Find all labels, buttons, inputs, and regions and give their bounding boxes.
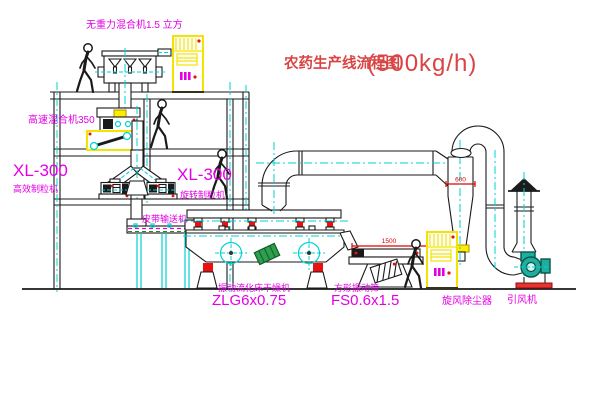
cyclone-diameter-dim: 600 — [455, 177, 466, 184]
exhaust-duct — [256, 142, 448, 214]
granulator-right — [145, 179, 177, 199]
cad-flow-diagram: 1500 548 600 — [0, 0, 600, 403]
control-cabinet-upper — [172, 36, 204, 92]
sieve-length-dim: 1500 — [382, 238, 397, 245]
drawing-title: 农药生产线流程图 (500kg/h) — [283, 50, 477, 77]
drawing-canvas: 1500 548 600 — [0, 0, 600, 403]
label-granulator-right-model: XL-300 — [177, 165, 232, 184]
label-dryer-model: ZLG6x0.75 — [212, 292, 286, 309]
label-granulator-right-name: 旋转制粒机 — [180, 189, 225, 200]
induced-draft-fan — [514, 252, 552, 288]
conveyor-legs — [137, 233, 189, 288]
fan-base — [516, 283, 552, 288]
title-capacity: (500kg/h) — [367, 50, 477, 77]
label-gravity-mixer: 无重力混合机1.5 立方 — [86, 18, 183, 31]
control-cabinet-lower — [426, 232, 458, 288]
person-top-floor — [77, 44, 95, 92]
label-high-speed-mixer: 高速混合机350 — [28, 113, 95, 126]
label-cyclone: 旋风除尘器 — [442, 294, 492, 307]
label-granulator-left-name: 高效制粒机 — [13, 183, 58, 194]
label-granulator-left-model: XL-300 — [13, 161, 68, 180]
person-second-floor — [151, 100, 169, 148]
label-belt-conveyor: 皮带输送机 — [142, 213, 187, 224]
fan-motor — [541, 259, 550, 273]
fluid-bed-dryer — [180, 210, 358, 288]
label-sieve-model: FS0.6x1.5 — [331, 292, 399, 309]
dryer-lid — [187, 210, 341, 218]
mixer-inlet-funnels — [109, 59, 151, 73]
granulator-left — [99, 179, 131, 199]
label-fan: 引风机 — [507, 293, 537, 306]
